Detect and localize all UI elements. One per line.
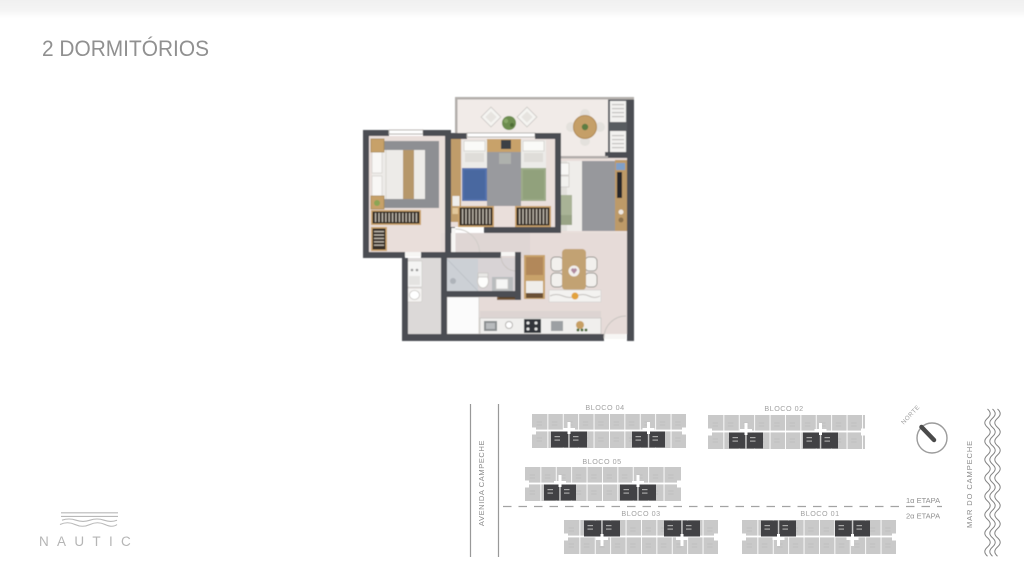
svg-text:MAR DO CAMPECHE: MAR DO CAMPECHE: [965, 440, 974, 528]
svg-text:NORTE: NORTE: [900, 404, 922, 426]
svg-text:1α ETAPA: 1α ETAPA: [906, 496, 940, 505]
svg-text:BLOCO 02: BLOCO 02: [764, 404, 803, 413]
svg-text:AVENIDA CAMPECHE: AVENIDA CAMPECHE: [477, 440, 486, 526]
svg-text:BLOCO 04: BLOCO 04: [585, 403, 624, 412]
svg-text:2 DORMITÓRIOS: 2 DORMITÓRIOS: [42, 36, 209, 61]
svg-text:BLOCO 03: BLOCO 03: [621, 509, 660, 518]
svg-text:2α ETAPA: 2α ETAPA: [906, 512, 940, 521]
svg-text:NAUTIC: NAUTIC: [39, 534, 139, 549]
svg-text:BLOCO 01: BLOCO 01: [800, 509, 839, 518]
svg-text:BLOCO 05: BLOCO 05: [582, 457, 621, 466]
